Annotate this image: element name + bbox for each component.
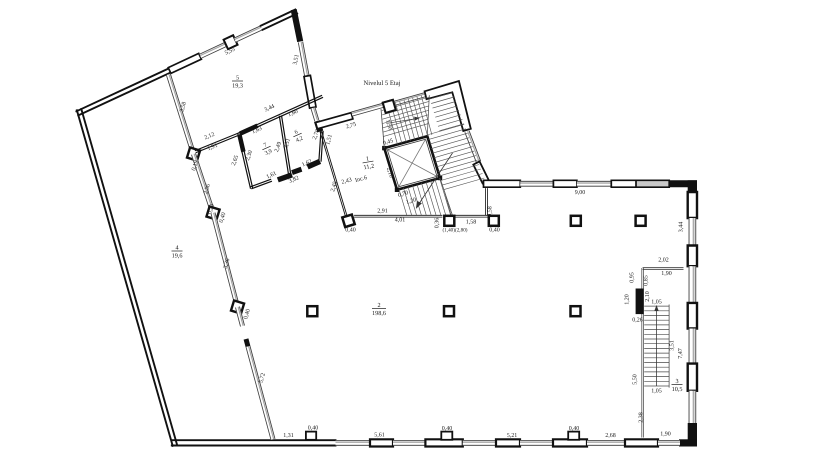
svg-text:2: 2 <box>377 302 380 309</box>
svg-text:0,95: 0,95 <box>630 272 636 283</box>
svg-text:3,51: 3,51 <box>670 340 676 351</box>
svg-text:1,20: 1,20 <box>625 294 631 305</box>
svg-text:7,47: 7,47 <box>678 348 684 359</box>
svg-text:5: 5 <box>236 74 239 81</box>
svg-text:0,40: 0,40 <box>345 228 356 234</box>
svg-text:1,05: 1,05 <box>651 300 662 306</box>
svg-text:198,6: 198,6 <box>372 310 386 317</box>
svg-text:19,6: 19,6 <box>172 253 183 260</box>
svg-text:2,68: 2,68 <box>605 433 616 439</box>
svg-text:0,40: 0,40 <box>442 426 453 432</box>
svg-text:0,40: 0,40 <box>569 426 580 432</box>
svg-text:0,40: 0,40 <box>489 228 500 234</box>
svg-text:2,91: 2,91 <box>377 209 388 215</box>
svg-text:0,26: 0,26 <box>632 318 643 324</box>
svg-text:3: 3 <box>675 378 678 385</box>
svg-text:1,31: 1,31 <box>283 433 294 439</box>
svg-text:4: 4 <box>175 244 178 251</box>
svg-text:4,01: 4,01 <box>395 218 406 224</box>
svg-text:10,5: 10,5 <box>672 386 683 393</box>
svg-text:5,21: 5,21 <box>507 433 518 439</box>
svg-text:2,38: 2,38 <box>639 412 645 423</box>
svg-text:1,58: 1,58 <box>466 220 477 226</box>
svg-text:3,44: 3,44 <box>679 222 685 233</box>
svg-text:2,10: 2,10 <box>645 291 651 302</box>
svg-text:Nivelul 5 Etaj: Nivelul 5 Etaj <box>364 80 401 87</box>
svg-text:0,40: 0,40 <box>308 426 319 432</box>
svg-text:0,36: 0,36 <box>435 218 441 229</box>
svg-text:5,50: 5,50 <box>633 374 639 385</box>
svg-text:19,3: 19,3 <box>232 83 243 90</box>
svg-text:9,00: 9,00 <box>575 190 586 196</box>
svg-text:(1,40)(2,80): (1,40)(2,80) <box>442 228 467 234</box>
svg-text:0,58: 0,58 <box>488 206 494 217</box>
svg-text:2,02: 2,02 <box>658 258 669 264</box>
svg-text:1,05: 1,05 <box>651 389 662 395</box>
svg-text:1,90: 1,90 <box>660 432 671 438</box>
svg-text:1,90: 1,90 <box>661 271 672 277</box>
svg-text:0,85: 0,85 <box>644 275 650 286</box>
svg-text:5,61: 5,61 <box>374 433 385 439</box>
